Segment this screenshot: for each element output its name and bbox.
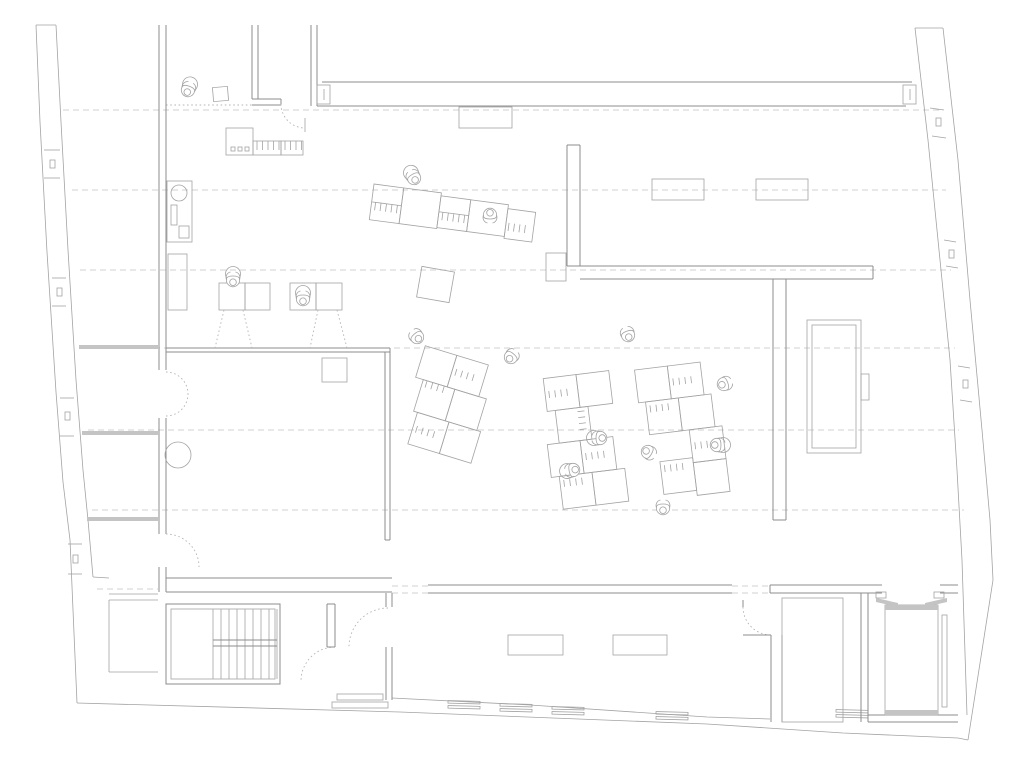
tick <box>650 405 651 412</box>
equipment-dial <box>171 185 187 201</box>
tick <box>391 205 392 213</box>
tick <box>437 384 439 391</box>
desk-module <box>576 371 613 408</box>
pilaster-right <box>903 85 916 104</box>
desk-module <box>635 366 672 403</box>
desk-module <box>646 398 683 435</box>
4 <box>549 389 568 398</box>
4 <box>650 403 669 412</box>
tick <box>385 204 386 212</box>
tick <box>656 405 657 412</box>
workbench-knob-3 <box>245 147 249 151</box>
tick <box>707 441 708 448</box>
tick <box>598 452 599 459</box>
small-crate <box>212 86 228 101</box>
tick <box>670 464 671 471</box>
4 <box>586 451 605 460</box>
tick <box>455 369 457 376</box>
workbench-counter-2 <box>281 141 303 155</box>
pilaster-left <box>317 85 330 104</box>
beam-1-right <box>243 310 252 348</box>
window-e1-b <box>932 136 946 138</box>
pillar-box <box>546 253 566 281</box>
tick <box>549 391 550 398</box>
4 <box>455 369 474 381</box>
equipment-slot <box>171 205 177 225</box>
4 <box>415 426 434 438</box>
desk-module <box>414 380 455 421</box>
exterior-wall-west-outer <box>36 25 77 703</box>
4 <box>564 478 583 487</box>
desk-module <box>660 458 697 495</box>
tick <box>564 480 565 487</box>
window-w2-sill <box>57 288 62 296</box>
figure-4 <box>401 163 424 188</box>
exterior-wall-south-outer <box>77 703 968 740</box>
tick <box>447 213 448 221</box>
tick <box>425 381 427 388</box>
tick <box>673 378 674 385</box>
tick <box>662 404 663 411</box>
tick <box>555 390 556 397</box>
tick <box>415 426 417 433</box>
tick <box>580 429 587 430</box>
mid-room-cabinet <box>322 358 347 382</box>
desk-cluster-a <box>396 346 500 463</box>
tick <box>586 453 587 460</box>
tick <box>577 411 584 412</box>
floor-plan-page <box>0 0 1024 768</box>
desk-module <box>678 394 715 431</box>
window-e2-sill <box>949 250 954 258</box>
tick <box>570 479 571 486</box>
tick <box>578 417 585 418</box>
door-swing-southeast <box>743 607 771 635</box>
tick <box>442 212 443 220</box>
tick <box>461 371 463 378</box>
figure-7 <box>501 346 521 366</box>
bench-north-2 <box>756 179 808 200</box>
floor-plan-svg <box>0 0 1024 768</box>
desk-module <box>399 188 441 229</box>
tick <box>582 478 583 485</box>
exterior-wall-west-inner <box>56 25 93 577</box>
tick <box>679 378 680 385</box>
pier-2b <box>500 709 532 712</box>
tick <box>668 403 669 410</box>
wall-corner-sw <box>93 577 109 578</box>
tick <box>464 215 465 223</box>
4 <box>425 381 444 393</box>
4 <box>577 411 586 430</box>
stairwell-outer <box>166 604 280 684</box>
4 <box>664 463 683 472</box>
desk-module <box>445 389 486 430</box>
person-head <box>599 435 606 442</box>
tick <box>603 451 604 458</box>
person-head <box>487 210 494 217</box>
4 <box>508 223 525 233</box>
desk-module <box>447 355 488 396</box>
left-room-round-table <box>165 442 191 468</box>
beam-2-left <box>310 310 318 348</box>
pier-3b <box>552 712 584 715</box>
tick <box>695 442 696 449</box>
tick <box>567 389 568 396</box>
equipment-box <box>179 226 189 238</box>
se-room-platform <box>782 598 843 722</box>
tick <box>380 203 381 211</box>
pier-5b <box>836 715 868 718</box>
person-head <box>712 442 719 449</box>
figure-14 <box>656 500 670 515</box>
figure-8 <box>619 325 637 344</box>
pier-1b <box>448 706 480 709</box>
pier-4a <box>656 712 688 715</box>
tick <box>664 465 665 472</box>
desk-cluster-c <box>635 360 730 501</box>
door-swing-left-lower <box>166 534 199 567</box>
figure-10 <box>587 431 607 446</box>
4 <box>673 376 692 385</box>
figure-5 <box>483 208 497 223</box>
tilted-crate <box>417 266 455 302</box>
desk-pair-2-right <box>316 283 342 310</box>
entry-steps-2 <box>332 702 388 708</box>
tick <box>396 205 397 213</box>
desk-module <box>439 422 480 463</box>
window-w1-sill <box>50 160 55 168</box>
kiln-hatch-bottom <box>885 710 938 715</box>
slab-wall-3 <box>87 517 159 521</box>
tick <box>453 214 454 222</box>
desk-pair-1-right <box>245 283 270 310</box>
tick <box>701 442 702 449</box>
tick <box>472 374 474 381</box>
tick <box>691 376 692 383</box>
long-table-outer <box>807 320 861 453</box>
figure-13 <box>558 461 581 479</box>
long-table-inner <box>812 325 856 448</box>
exterior-wall-south-inner <box>392 698 770 719</box>
workbench-knob-2 <box>238 147 242 151</box>
door-swing-room <box>349 608 388 647</box>
tick <box>576 478 577 485</box>
figure-12 <box>710 438 730 453</box>
stairwell-inner <box>171 609 275 679</box>
figure-3 <box>296 286 311 306</box>
kiln-body <box>885 605 938 715</box>
tick <box>442 386 444 393</box>
tick <box>421 428 423 435</box>
exterior-wall-east-inner <box>915 28 967 715</box>
window-e3-sill <box>963 380 968 388</box>
door-swing-stair <box>301 647 335 681</box>
4 <box>285 141 302 150</box>
tick <box>579 423 586 424</box>
kiln-rail <box>942 615 947 707</box>
beam-1-left <box>215 310 224 348</box>
person-head <box>660 507 667 514</box>
window-w4-sill <box>73 555 78 563</box>
tick <box>508 223 509 231</box>
desk-row-angled <box>369 184 536 242</box>
person-head <box>230 279 237 286</box>
desk-module <box>416 346 457 387</box>
bench-north-1 <box>652 179 704 200</box>
tick <box>592 452 593 459</box>
double-door-arc-bottom <box>166 394 188 416</box>
workbench-knob-1 <box>231 147 235 151</box>
beam-2-right <box>337 310 347 348</box>
figure-11 <box>639 443 659 462</box>
door-swing-top <box>281 104 305 128</box>
tick <box>561 390 562 397</box>
slab-wall-2 <box>82 431 159 435</box>
tick <box>524 225 525 233</box>
window-e2-a <box>944 240 956 242</box>
bench-south-2 <box>613 635 667 655</box>
figure-1 <box>179 75 200 99</box>
window-e1-sill <box>936 118 941 126</box>
tick <box>513 224 514 232</box>
pier-5a <box>836 710 868 713</box>
desk-module <box>693 459 730 496</box>
entry-steps-1 <box>337 694 383 700</box>
double-door-arc-top <box>166 372 188 394</box>
tick <box>431 383 433 390</box>
tick <box>685 377 686 384</box>
tick <box>458 214 459 222</box>
long-table-tab <box>861 374 869 400</box>
tick <box>375 202 376 210</box>
pier-4b <box>656 717 688 720</box>
5 <box>257 141 279 150</box>
tick <box>676 464 677 471</box>
tick <box>433 431 435 438</box>
window-w3-sill <box>65 412 70 420</box>
figure-2 <box>226 267 241 287</box>
slab-wall-1 <box>79 345 159 349</box>
person-head <box>300 298 307 305</box>
bench-south-1 <box>508 635 563 655</box>
window-e3-b <box>960 400 972 402</box>
tick <box>466 372 468 379</box>
9 <box>213 609 277 679</box>
desk-module <box>408 412 449 453</box>
tick <box>519 224 520 232</box>
desk-module <box>592 468 629 505</box>
window-e2-b <box>946 266 958 268</box>
figure-6 <box>407 326 427 346</box>
desk-cluster-b <box>539 370 629 510</box>
tick <box>682 463 683 470</box>
figure-9 <box>715 375 734 393</box>
tick <box>427 429 429 436</box>
left-room-shelf <box>168 254 187 310</box>
window-e3-a <box>958 366 970 368</box>
